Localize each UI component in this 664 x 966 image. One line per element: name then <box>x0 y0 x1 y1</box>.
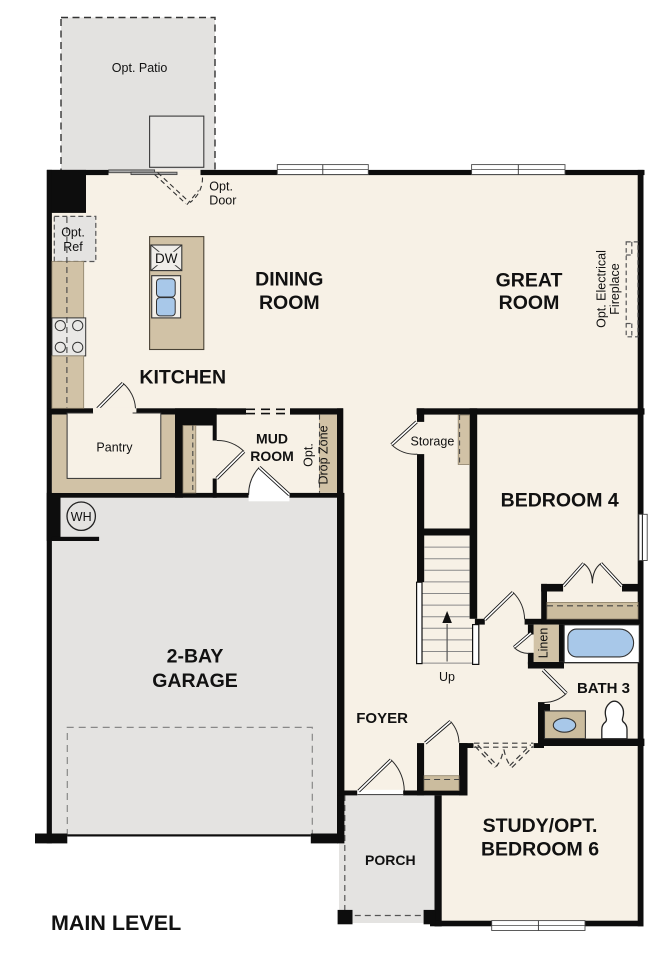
svg-text:WH: WH <box>71 510 92 524</box>
svg-text:2-BAY: 2-BAY <box>167 645 224 667</box>
svg-text:ROOM: ROOM <box>499 292 560 314</box>
svg-text:Up: Up <box>439 670 455 684</box>
svg-text:Storage: Storage <box>411 435 455 449</box>
svg-text:Opt. Patio: Opt. Patio <box>112 61 168 75</box>
svg-text:PORCH: PORCH <box>365 852 416 868</box>
svg-text:DW: DW <box>155 251 178 266</box>
svg-text:BEDROOM 6: BEDROOM 6 <box>481 839 599 861</box>
svg-text:Linen: Linen <box>537 628 551 659</box>
svg-text:ROOM: ROOM <box>259 292 320 314</box>
svg-text:Ref: Ref <box>63 240 83 254</box>
svg-text:MUD: MUD <box>256 431 288 447</box>
svg-text:MAIN LEVEL: MAIN LEVEL <box>51 911 181 935</box>
svg-text:Drop Zone: Drop Zone <box>317 425 331 484</box>
svg-text:GREAT: GREAT <box>496 269 563 291</box>
svg-text:FOYER: FOYER <box>356 710 408 727</box>
svg-text:BATH 3: BATH 3 <box>577 680 630 697</box>
svg-text:ROOM: ROOM <box>250 448 294 464</box>
svg-text:DINING: DINING <box>255 269 323 291</box>
svg-text:Opt.: Opt. <box>209 180 233 194</box>
svg-text:KITCHEN: KITCHEN <box>139 367 226 389</box>
svg-text:Pantry: Pantry <box>96 440 133 454</box>
svg-text:Fireplace: Fireplace <box>608 263 622 314</box>
svg-text:BEDROOM 4: BEDROOM 4 <box>501 490 619 512</box>
svg-text:STUDY/OPT.: STUDY/OPT. <box>483 815 598 837</box>
svg-text:Opt.: Opt. <box>61 226 85 240</box>
svg-text:Opt.: Opt. <box>301 443 315 467</box>
svg-text:GARAGE: GARAGE <box>152 670 238 692</box>
svg-text:Door: Door <box>209 194 236 208</box>
svg-text:Opt. Electrical: Opt. Electrical <box>595 250 609 328</box>
